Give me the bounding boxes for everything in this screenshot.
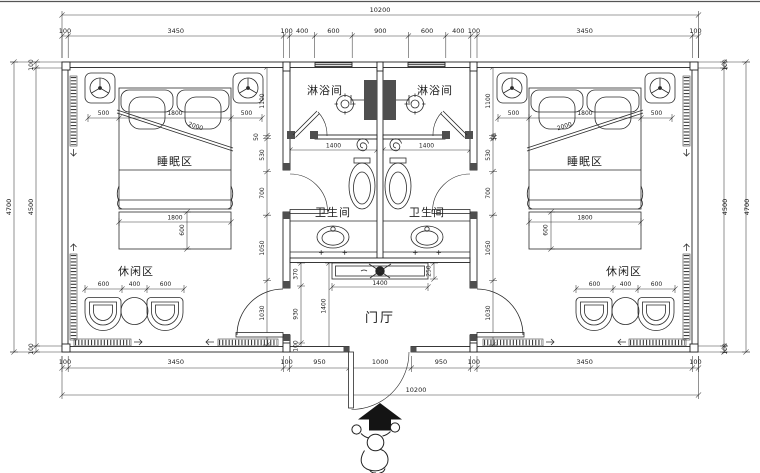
dim-chain-left-1: 50 xyxy=(253,133,260,141)
floor-plan-drawing: 10200 100 3450 100 400 600 900 600 400 1… xyxy=(0,0,760,473)
dim-left-inner: 4500 xyxy=(27,199,35,216)
dim-right-outer: 4700 xyxy=(743,199,751,216)
partition-left-upper xyxy=(283,62,290,170)
dim-leisure-right-2: 600 xyxy=(651,281,663,288)
entry-arrow-icon xyxy=(358,403,402,420)
dim-chain-left-0: 1100 xyxy=(259,93,266,108)
dim-bed-right-1: 1800 xyxy=(577,110,592,117)
dim-bottom-2: 100 xyxy=(280,358,292,366)
dim-foyer-depth: 1400 xyxy=(321,298,328,313)
room-label-wc-left: 卫生间 xyxy=(315,205,351,219)
room-label-shower-right: 淋浴间 xyxy=(417,84,453,97)
dim-top-4: 600 xyxy=(327,27,339,35)
dim-bed-left-0: 500 xyxy=(98,110,110,117)
dim-bottom-0: 100 xyxy=(59,358,71,366)
corner-post xyxy=(62,344,70,352)
partition-right-upper xyxy=(470,62,477,170)
dim-right-wall-bottom: 100 xyxy=(722,343,729,355)
nightstand-lamp-icon xyxy=(85,73,115,103)
corner-post xyxy=(690,62,698,70)
dim-leisure-right-0: 600 xyxy=(589,281,601,288)
dimension-line xyxy=(59,32,701,58)
room-label-foyer: 门厅 xyxy=(365,311,395,326)
room-label-shower-left: 淋浴间 xyxy=(307,84,343,97)
shower-wall-left xyxy=(315,135,377,139)
dim-bed-right-0: 500 xyxy=(508,110,520,117)
junction-post xyxy=(283,62,290,71)
nightstand-lamp-icon xyxy=(497,73,527,103)
dim-top-8: 100 xyxy=(468,27,480,35)
wall-bottom-left xyxy=(62,347,349,353)
dim-bottom-7: 3450 xyxy=(576,358,593,366)
room-label-sleep-left: 睡眠区 xyxy=(157,155,193,168)
dim-leisure-right-1: 400 xyxy=(620,281,632,288)
dim-foyer-chain-0: 370 xyxy=(293,268,300,280)
toilet-icon xyxy=(385,158,411,209)
dim-bed-diag-left: 2000 xyxy=(187,121,204,132)
dim-counter-width: 1400 xyxy=(372,280,387,287)
partition-left-mid xyxy=(283,212,290,288)
leisure-chairs-right xyxy=(576,298,674,331)
dim-top-7: 400 xyxy=(452,27,464,35)
leisure-table-right xyxy=(612,298,639,325)
wall-left xyxy=(62,62,68,352)
wall-bottom-right xyxy=(411,347,698,353)
dim-bed-right-2: 500 xyxy=(651,110,663,117)
entry-marker xyxy=(352,403,402,473)
nightstand-lamp-icon xyxy=(645,73,675,103)
corner-post xyxy=(690,344,698,352)
shower-post-left xyxy=(364,80,377,120)
walls xyxy=(62,62,698,352)
dim-top-6: 600 xyxy=(421,27,433,35)
dim-right-wall-top: 100 xyxy=(722,59,729,71)
dim-overall-bottom: 10200 xyxy=(406,386,427,394)
wc-bottom-wall xyxy=(290,258,470,263)
right-room-furniture xyxy=(477,73,675,337)
shower-wall-right xyxy=(383,135,445,139)
dim-chain-right-0: 1100 xyxy=(485,93,492,108)
dim-left-wall-top: 100 xyxy=(28,59,35,71)
dim-bench-width-right: 1800 xyxy=(577,215,592,222)
dim-bed-left-1: 1800 xyxy=(167,110,182,117)
leisure-chairs-left xyxy=(85,298,183,331)
left-room-furniture xyxy=(85,73,283,337)
room-label-leisure-left: 休闲区 xyxy=(118,264,154,278)
leisure-table-left xyxy=(121,298,148,325)
dim-bottom-1: 3450 xyxy=(168,358,185,366)
dim-left-outer: 4700 xyxy=(5,199,13,216)
dim-bed-diag-right: 2000 xyxy=(556,121,573,132)
dim-bed-left-2: 500 xyxy=(241,110,253,117)
dim-chain-left-4: 1050 xyxy=(259,240,266,255)
dim-chain-left-3: 700 xyxy=(259,187,266,199)
dim-top-0: 100 xyxy=(59,27,71,35)
dim-top-9: 3450 xyxy=(576,27,593,35)
dim-top-10: 100 xyxy=(689,27,701,35)
room-label-leisure-right: 休闲区 xyxy=(606,264,642,278)
dim-chain-left-5: 1030 xyxy=(259,305,266,320)
paper-holder-icon xyxy=(390,139,402,151)
dim-top-1: 3450 xyxy=(168,27,185,35)
dim-bench-width-left: 1800 xyxy=(167,215,182,222)
dim-chain-right-1: 50 xyxy=(491,133,498,141)
room-label-sleep-right: 睡眠区 xyxy=(567,155,603,168)
dim-chain-right-5: 1030 xyxy=(485,305,492,320)
dim-right-inner: 4500 xyxy=(721,199,729,216)
junction-post xyxy=(283,343,290,352)
floor-plan-canvas: 10200 100 3450 100 400 600 900 600 400 1… xyxy=(0,0,760,473)
foyer-counter xyxy=(332,263,428,279)
dim-top-5: 900 xyxy=(374,27,386,35)
dim-top-3: 400 xyxy=(296,27,308,35)
dim-leisure-left-0: 600 xyxy=(98,281,110,288)
entry-arrow-stem xyxy=(369,420,391,431)
dim-chain-right-4: 1050 xyxy=(485,240,492,255)
dim-shower-right-width: 1400 xyxy=(419,143,434,150)
dim-bottom-3: 950 xyxy=(313,358,325,366)
dim-bottom-8: 100 xyxy=(689,358,701,366)
dim-bottom-4: 1000 xyxy=(372,358,389,366)
wall-center xyxy=(377,62,383,262)
dim-counter-depth: 250 xyxy=(426,265,433,277)
dim-overall-top: 10200 xyxy=(370,6,391,14)
toilet-icon xyxy=(349,158,375,209)
dim-chain-left-2: 530 xyxy=(259,149,266,161)
paper-holder-icon xyxy=(357,139,369,151)
corner-post xyxy=(62,62,70,70)
dim-foyer-chain-1: 930 xyxy=(293,308,300,320)
junction-post xyxy=(470,343,477,352)
shower-post-right xyxy=(383,80,396,120)
dim-bottom-6: 100 xyxy=(468,358,480,366)
dim-left-wall-bottom: 100 xyxy=(28,343,35,355)
junction-post xyxy=(377,62,383,71)
dim-foyer-chain-2: 100 xyxy=(293,340,300,352)
washbasin-icon xyxy=(317,226,349,255)
washbasin-icon xyxy=(411,226,443,255)
wall-right xyxy=(692,62,698,352)
dim-leisure-left-1: 400 xyxy=(129,281,141,288)
dim-shower-left-width: 1400 xyxy=(326,143,341,150)
junction-post xyxy=(470,62,477,71)
dim-bench-depth-left: 600 xyxy=(179,224,186,236)
dim-chain-right-2: 530 xyxy=(485,149,492,161)
partition-right-mid xyxy=(470,212,477,288)
room-label-wc-right: 卫生间 xyxy=(409,205,445,219)
dim-top-2: 100 xyxy=(280,27,292,35)
dim-chain-right-3: 700 xyxy=(485,187,492,199)
dim-leisure-left-2: 600 xyxy=(160,281,172,288)
dim-bench-depth-right: 600 xyxy=(543,224,550,236)
dim-bottom-5: 950 xyxy=(435,358,447,366)
